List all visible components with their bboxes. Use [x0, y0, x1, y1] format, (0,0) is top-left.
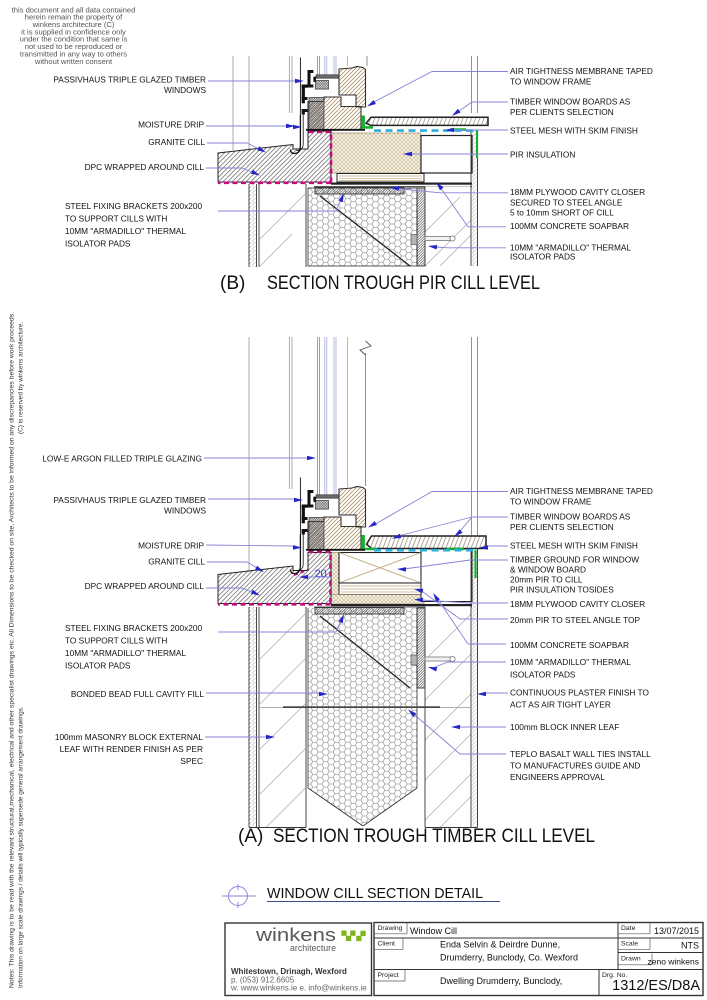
svg-text:TO SUPPORT CILLS WITH: TO SUPPORT CILLS WITH [65, 214, 167, 224]
svg-text:architecture: architecture [290, 943, 336, 953]
svg-text:SECURED TO STEEL ANGLE: SECURED TO STEEL ANGLE [510, 197, 623, 207]
svg-text:zeno winkens: zeno winkens [647, 957, 699, 967]
svg-text:20mm PIR TO CILL: 20mm PIR TO CILL [510, 575, 583, 585]
svg-text:BONDED BEAD FULL CAVITY FILL: BONDED BEAD FULL CAVITY FILL [71, 689, 204, 699]
svg-text:(C) is reserved by winkens arc: (C) is reserved by winkens architecture. [18, 322, 25, 434]
svg-text:100MM CONCRETE SOAPBAR: 100MM CONCRETE SOAPBAR [510, 640, 629, 650]
svg-text:1312/ES/D8A: 1312/ES/D8A [612, 978, 700, 994]
svg-text:Enda Selvin & Deirdre Dunne,: Enda Selvin & Deirdre Dunne, [440, 940, 560, 950]
svg-text:winkens: winkens [255, 925, 336, 945]
svg-text:Dwelling Drumderry, Bunclody,: Dwelling Drumderry, Bunclody, [440, 976, 562, 986]
svg-text:TO MANUFACTURES GUIDE AND: TO MANUFACTURES GUIDE AND [510, 761, 640, 771]
svg-text:10MM "ARMADILLO" THERMAL: 10MM "ARMADILLO" THERMAL [65, 226, 186, 236]
svg-text:100mm MASONRY BLOCK EXTERNAL: 100mm MASONRY BLOCK EXTERNAL [55, 732, 204, 742]
svg-text:ENGINEERS APPROVAL: ENGINEERS APPROVAL [510, 772, 605, 782]
svg-text:TO WINDOW FRAME: TO WINDOW FRAME [510, 76, 592, 86]
svg-text:AIR TIGHTNESS MEMBRANE TAPED: AIR TIGHTNESS MEMBRANE TAPED [510, 486, 653, 496]
svg-text:TIMBER WINDOW BOARDS AS: TIMBER WINDOW BOARDS AS [510, 97, 631, 107]
svg-text:10MM "ARMADILLO" THERMAL: 10MM "ARMADILLO" THERMAL [65, 648, 186, 658]
svg-text:ACT AS AIR TIGHT LAYER: ACT AS AIR TIGHT LAYER [510, 700, 611, 710]
svg-text:Drumderry, Bunclody, Co. Wexf: Drumderry, Bunclody, Co. Wexford [440, 953, 578, 963]
svg-text:ISOLATOR PADS: ISOLATOR PADS [65, 239, 131, 249]
svg-text:20mm PIR TO STEEL ANGLE TOP: 20mm PIR TO STEEL ANGLE TOP [510, 615, 640, 625]
svg-text:NTS: NTS [681, 941, 699, 951]
svg-text:PASSIVHAUS TRIPLE GLAZED TIMBE: PASSIVHAUS TRIPLE GLAZED TIMBER [53, 75, 206, 85]
svg-text:DPC WRAPPED AROUND CILL: DPC WRAPPED AROUND CILL [85, 162, 205, 172]
svg-text:GRANITE CILL: GRANITE CILL [148, 137, 205, 147]
svg-text:Client: Client [378, 941, 395, 948]
svg-text:WINDOW CILL SECTION DETAIL: WINDOW CILL SECTION DETAIL [267, 885, 483, 902]
svg-text:MOISTURE DRIP: MOISTURE DRIP [138, 120, 204, 130]
svg-text:Project: Project [378, 972, 399, 979]
svg-text:(A): (A) [238, 826, 263, 847]
svg-text:10MM "ARMADILLO" THERMAL: 10MM "ARMADILLO" THERMAL [510, 657, 631, 667]
svg-text:SECTION TROUGH PIR CILL LEVEL: SECTION TROUGH PIR CILL LEVEL [267, 273, 540, 294]
svg-text:PER CLIENTS SELECTION: PER CLIENTS SELECTION [510, 522, 614, 532]
svg-text:ISOLATOR PADS: ISOLATOR PADS [65, 661, 131, 671]
svg-text:LEAF WITH RENDER FINISH AS PER: LEAF WITH RENDER FINISH AS PER [60, 744, 203, 754]
svg-text:Scale: Scale [621, 941, 638, 948]
svg-text:100MM CONCRETE SOAPBAR: 100MM CONCRETE SOAPBAR [510, 221, 629, 231]
svg-text:CONTINUOUS PLASTER FINISH TO: CONTINUOUS PLASTER FINISH TO [510, 688, 649, 698]
svg-text:PIR INSULATION TOSIDES: PIR INSULATION TOSIDES [510, 585, 614, 595]
svg-text:TO WINDOW FRAME: TO WINDOW FRAME [510, 496, 592, 506]
svg-text:MOISTURE DRIP: MOISTURE DRIP [138, 541, 204, 551]
svg-text:18MM PLYWOOD CAVITY CLOSER: 18MM PLYWOOD CAVITY CLOSER [510, 187, 645, 197]
svg-text:18MM PLYWOOD CAVITY CLOSER: 18MM PLYWOOD CAVITY CLOSER [510, 599, 645, 609]
svg-text:100mm BLOCK INNER LEAF: 100mm BLOCK INNER LEAF [510, 722, 619, 732]
svg-text:PASSIVHAUS TRIPLE GLAZED TIMBE: PASSIVHAUS TRIPLE GLAZED TIMBER [53, 495, 206, 505]
svg-text:13/07/2015: 13/07/2015 [654, 926, 699, 936]
svg-text:GRANITE CILL: GRANITE CILL [148, 557, 205, 567]
svg-text:w. www.winkens.ie e. info@wi: w. www.winkens.ie e. info@winkens.ie [230, 984, 367, 993]
svg-text:TIMBER GROUND FOR WINDOW: TIMBER GROUND FOR WINDOW [510, 555, 639, 565]
svg-text:LOW-E ARGON FILLED TRIPLE GLAZ: LOW-E ARGON FILLED TRIPLE GLAZING [42, 454, 202, 464]
svg-text:ISOLATOR PADS: ISOLATOR PADS [510, 252, 576, 262]
svg-text:Information on large scale dra: Information on large scale drawings / de… [18, 706, 25, 988]
svg-text:STEEL FIXING BRACKETS 200x200: STEEL FIXING BRACKETS 200x200 [65, 623, 202, 633]
svg-text:SPEC: SPEC [180, 756, 203, 766]
svg-text:(B): (B) [220, 273, 245, 294]
svg-text:Date: Date [621, 925, 636, 932]
svg-text:WINDOWS: WINDOWS [164, 505, 206, 515]
svg-text:WINDOWS: WINDOWS [164, 85, 206, 95]
svg-text:Window Cill: Window Cill [410, 926, 457, 936]
svg-text:TEPLO BASALT WALL TIES INSTALL: TEPLO BASALT WALL TIES INSTALL [510, 749, 651, 759]
svg-text:Drawn: Drawn [621, 956, 641, 963]
svg-text:20: 20 [315, 568, 327, 580]
svg-text:DPC WRAPPED AROUND CILL: DPC WRAPPED AROUND CILL [85, 581, 205, 591]
svg-text:Drawing: Drawing [378, 925, 403, 932]
svg-text:PIR INSULATION: PIR INSULATION [510, 150, 575, 160]
svg-text:PER CLIENTS SELECTION: PER CLIENTS SELECTION [510, 107, 614, 117]
svg-text:without written consent: without written consent [34, 57, 113, 66]
svg-text:STEEL FIXING BRACKETS 200x200: STEEL FIXING BRACKETS 200x200 [65, 201, 202, 211]
svg-text:TO SUPPORT CILLS WITH: TO SUPPORT CILLS WITH [65, 636, 167, 646]
svg-text:Notes: This drawing is to be r: Notes: This drawing is to be read with t… [9, 312, 16, 988]
svg-text:& WINDOW BOARD: & WINDOW BOARD [510, 565, 586, 575]
svg-text:SECTION TROUGH TIMBER CILL LE: SECTION TROUGH TIMBER CILL LEVEL [273, 826, 595, 847]
svg-text:STEEL MESH WITH SKIM FINISH: STEEL MESH WITH SKIM FINISH [510, 540, 638, 550]
svg-text:AIR TIGHTNESS MEMBRANE TAPED: AIR TIGHTNESS MEMBRANE TAPED [510, 66, 653, 76]
svg-text:TIMBER WINDOW BOARDS AS: TIMBER WINDOW BOARDS AS [510, 512, 631, 522]
svg-text:5 to 10mm SHORT OF CILL: 5 to 10mm SHORT OF CILL [510, 207, 614, 217]
svg-text:ISOLATOR PADS: ISOLATOR PADS [510, 670, 576, 680]
svg-text:STEEL MESH WITH SKIM FINISH: STEEL MESH WITH SKIM FINISH [510, 126, 638, 136]
